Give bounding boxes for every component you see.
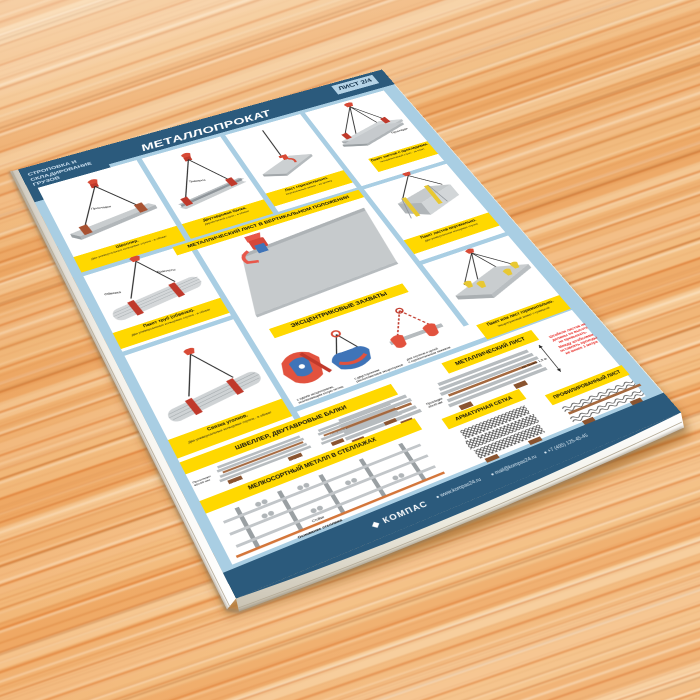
svg-text:Браслеты: Браслеты — [156, 268, 176, 274]
svg-text:Обвязка: Обвязка — [104, 290, 121, 296]
svg-text:Прокладки: Прокладки — [91, 205, 112, 211]
svg-text:Траверса: Траверса — [189, 178, 206, 183]
